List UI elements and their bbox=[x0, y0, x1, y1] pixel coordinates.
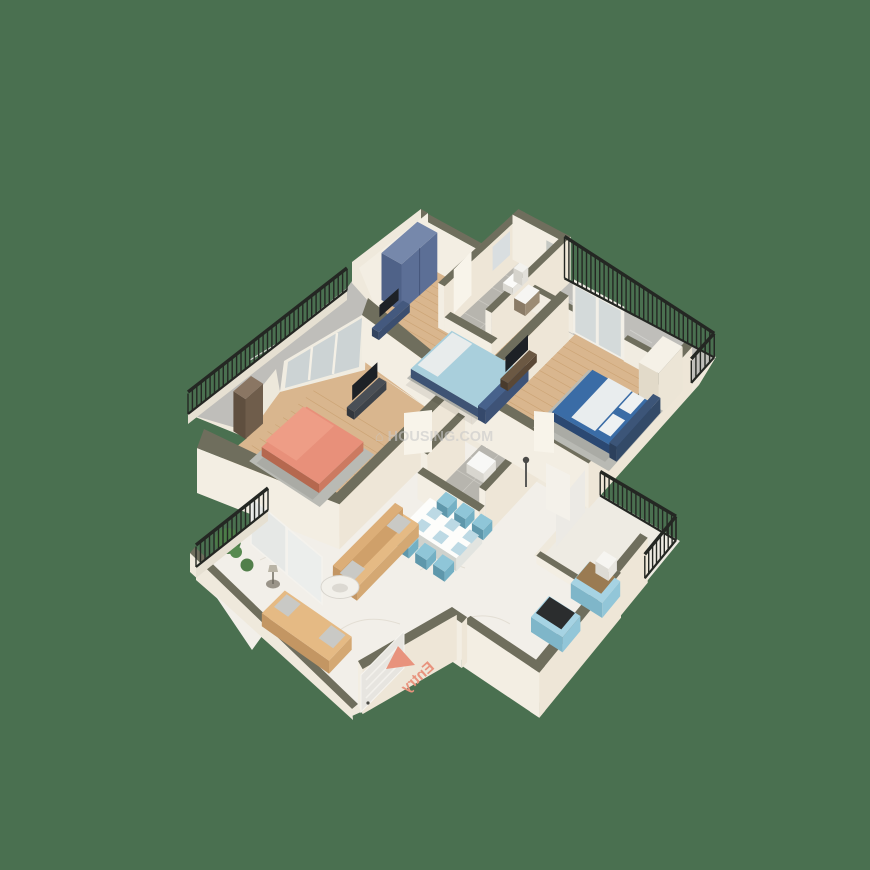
svg-text:⌂ HOUSING.COM: ⌂ HOUSING.COM bbox=[375, 429, 493, 445]
